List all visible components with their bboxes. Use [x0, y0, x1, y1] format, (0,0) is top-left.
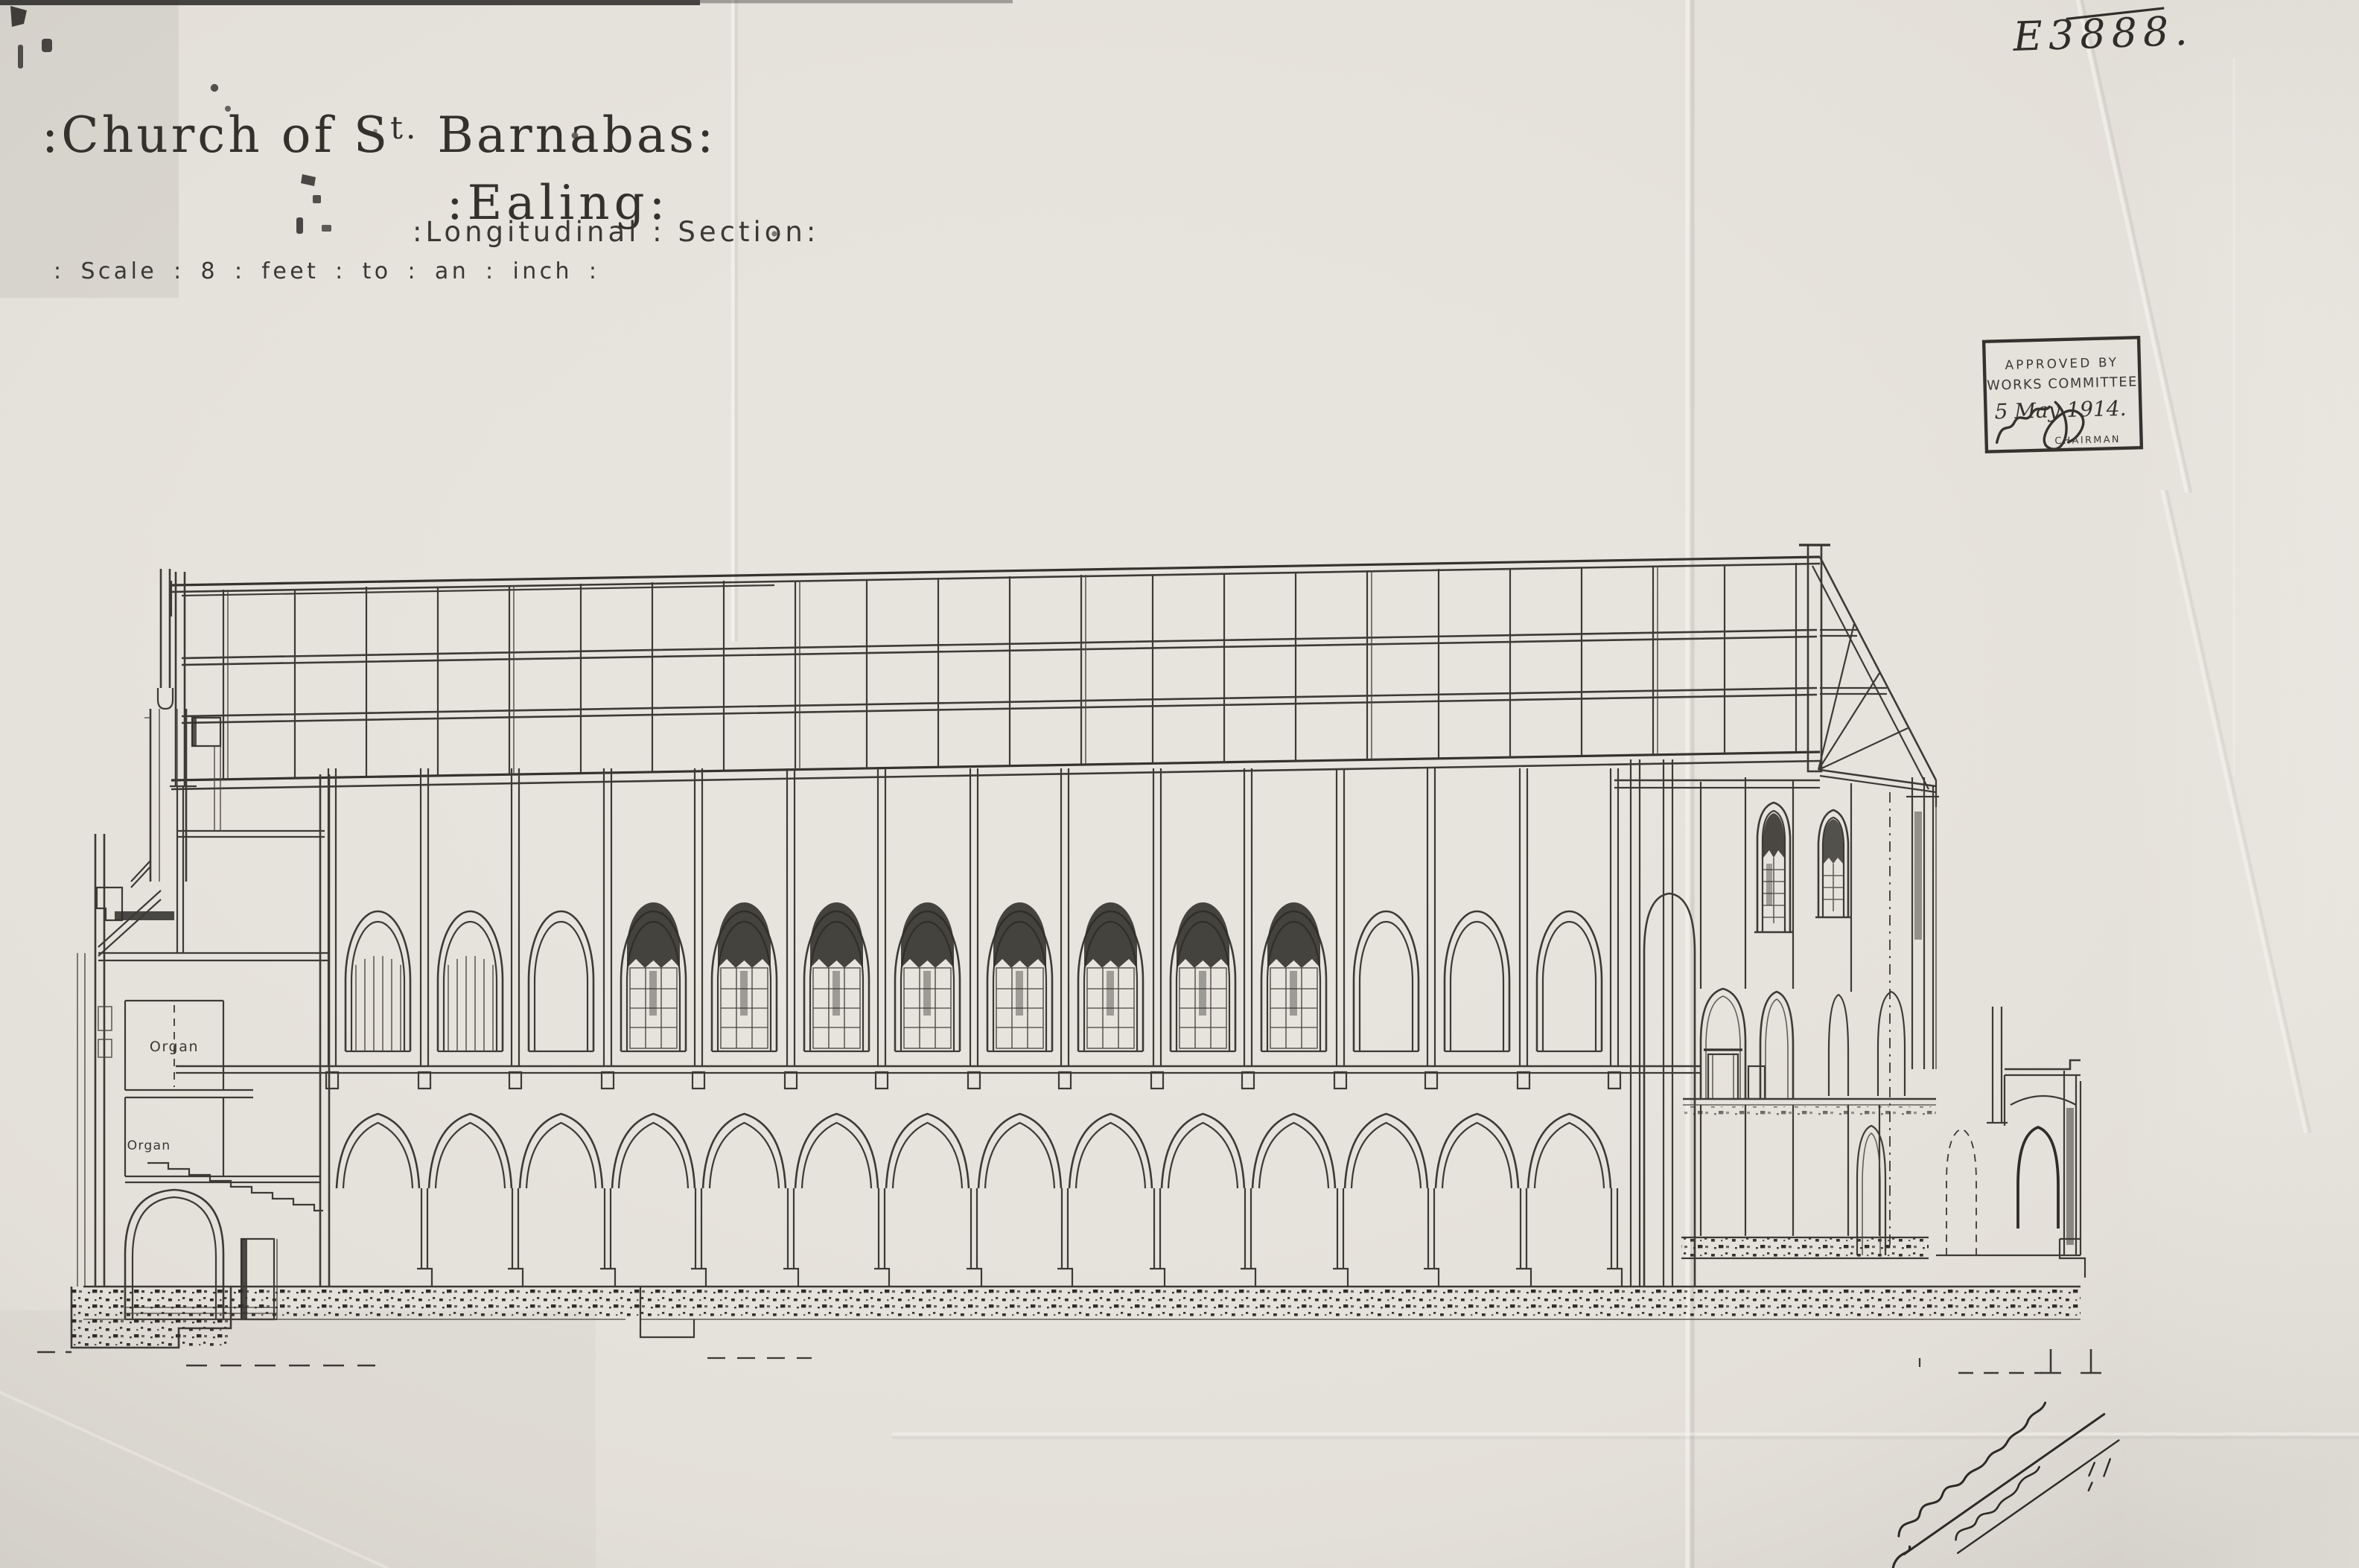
drawing-title: :Church of St. Barnabas: — [42, 106, 716, 164]
stamp-chairman-label: CHAIRMAN — [2054, 434, 2121, 447]
organ-label-lower: Organ — [127, 1138, 171, 1153]
scanned-architectural-drawing: :Church of St. Barnabas: :Ealing: :Longi… — [0, 0, 2359, 1568]
drawing-subtitle-view: :Longitudinal : Section: — [413, 216, 819, 248]
organ-label-upper: Organ — [150, 1039, 199, 1055]
stamp-line1: APPROVED BY — [2005, 354, 2118, 372]
reference-number: E3888. — [2011, 7, 2194, 60]
drawing-scale-note: : Scale : 8 : feet : to : an : inch : — [54, 258, 599, 284]
paper-background — [0, 0, 2359, 1568]
